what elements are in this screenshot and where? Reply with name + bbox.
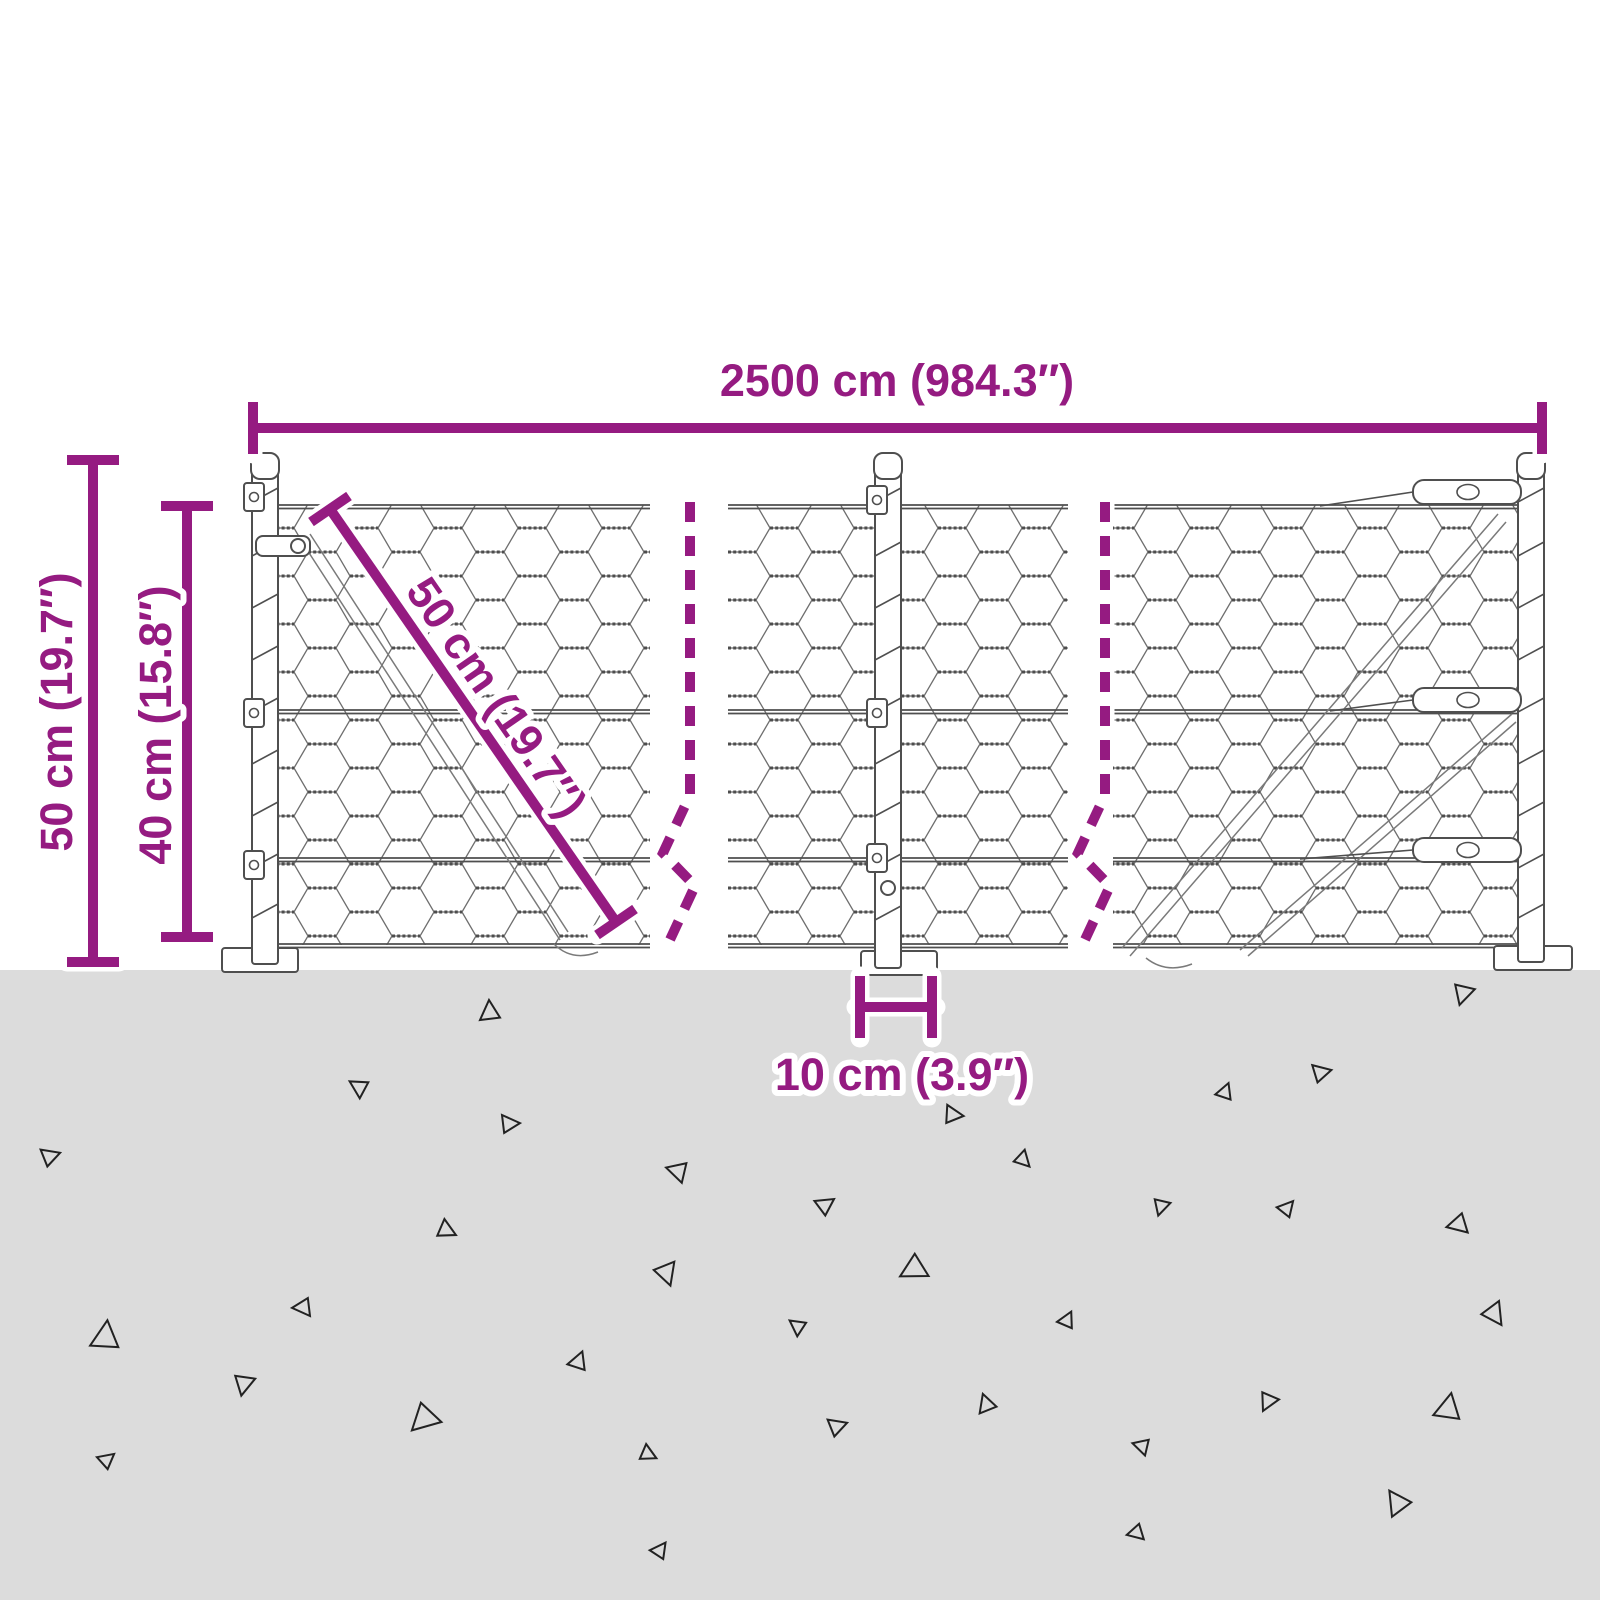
fence-illustration xyxy=(222,453,1572,975)
mesh-height-label: 40 cm (15.8″) xyxy=(130,585,181,864)
total-width-label: 2500 cm (984.3″) xyxy=(720,355,1074,406)
dimension-mesh-height: 40 cm (15.8″) xyxy=(130,506,213,937)
break-line-1 xyxy=(663,502,695,944)
fence-dimension-diagram: 2500 cm (984.3″) 50 cm (19.7″) 40 cm (15… xyxy=(0,0,1600,1600)
diagram-svg: 2500 cm (984.3″) 50 cm (19.7″) 40 cm (15… xyxy=(0,0,1600,1600)
mesh-panel-3 xyxy=(1113,505,1520,945)
dimension-total-width: 2500 cm (984.3″) xyxy=(253,355,1542,454)
post-hole xyxy=(881,881,895,895)
break-line-2 xyxy=(1078,502,1110,944)
post-height-label: 50 cm (19.7″) xyxy=(31,572,82,851)
base-width-label: 10 cm (3.9″) xyxy=(775,1049,1029,1100)
dimension-post-height: 50 cm (19.7″) xyxy=(31,460,119,962)
turnbuckle-top xyxy=(1320,480,1521,506)
